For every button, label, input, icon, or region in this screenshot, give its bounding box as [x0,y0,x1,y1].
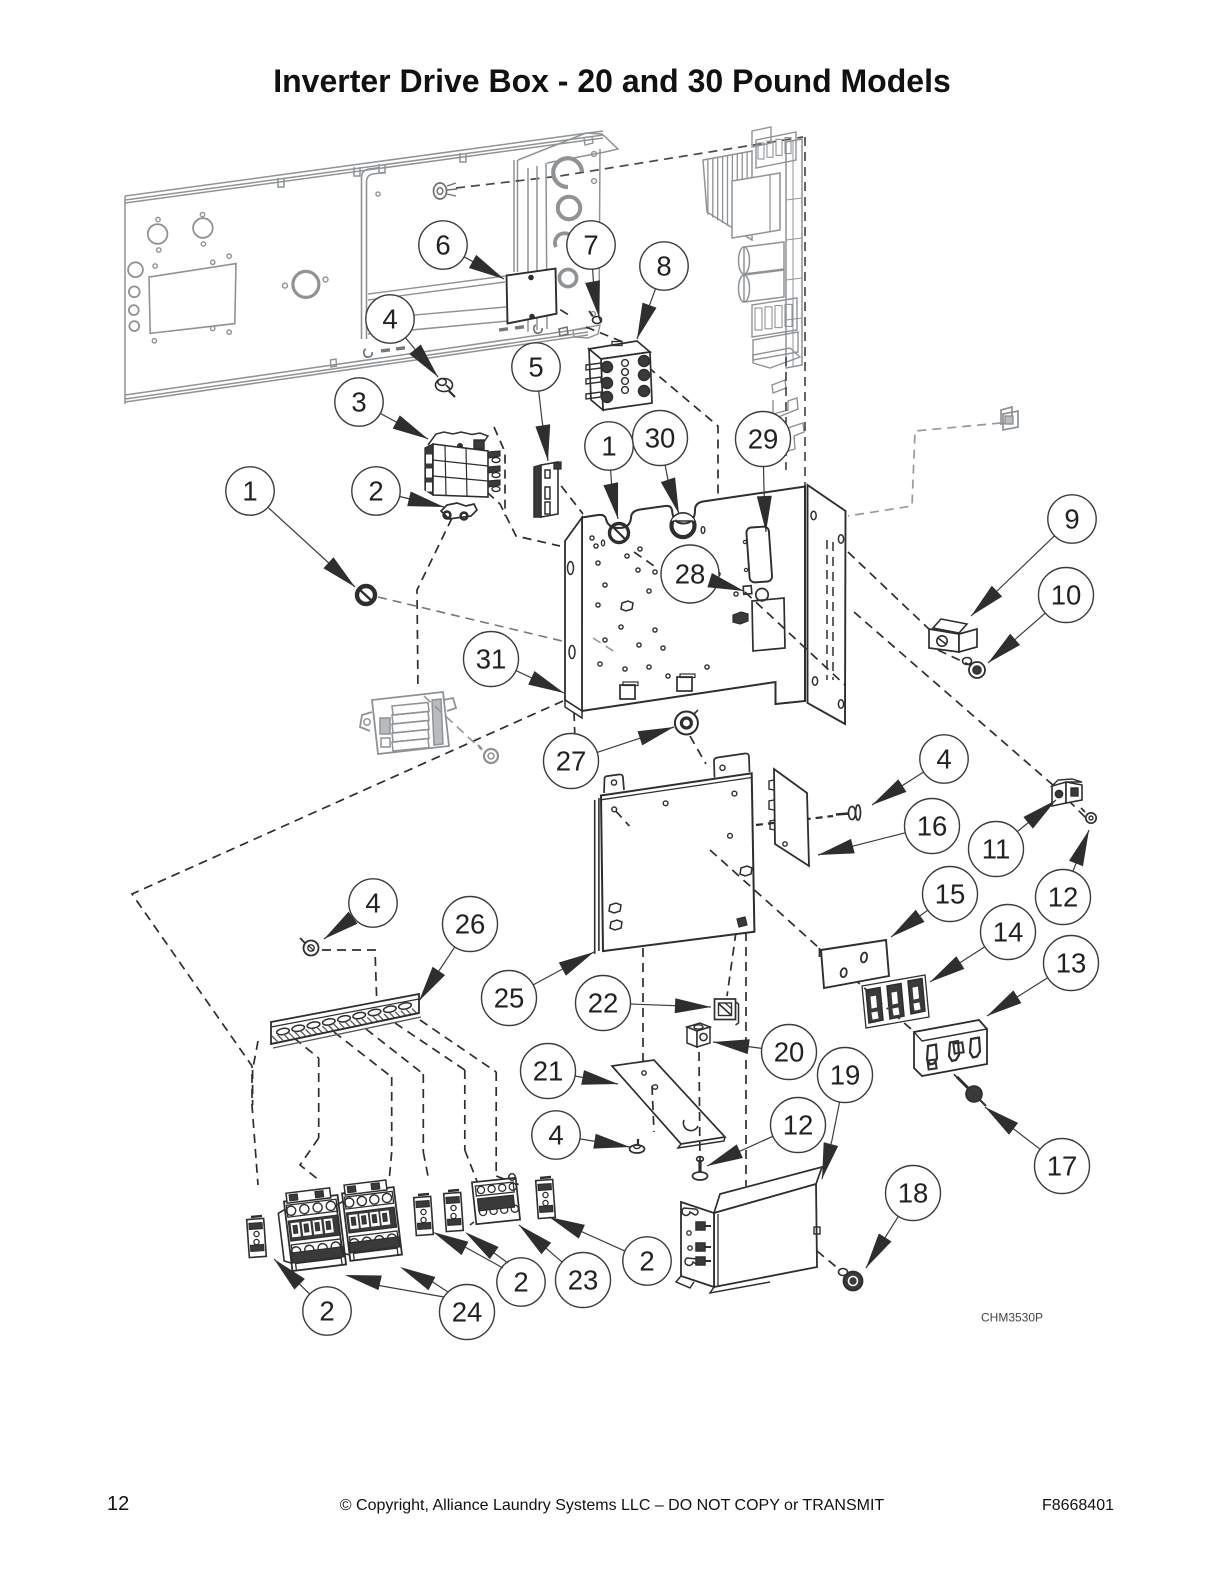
svg-text:4: 4 [936,744,951,775]
svg-text:12: 12 [107,1493,129,1515]
svg-text:12: 12 [783,1110,814,1141]
svg-text:17: 17 [1047,1151,1078,1182]
svg-text:23: 23 [568,1265,599,1296]
svg-text:4: 4 [548,1120,563,1151]
svg-text:15: 15 [935,879,966,910]
svg-text:12: 12 [1048,882,1079,913]
svg-text:26: 26 [455,909,486,940]
svg-text:13: 13 [1056,948,1087,979]
svg-text:11: 11 [982,834,1011,865]
svg-text:8: 8 [656,251,671,282]
svg-text:18: 18 [898,1178,929,1209]
svg-text:31: 31 [476,644,507,675]
svg-text:21: 21 [533,1056,564,1087]
svg-text:1: 1 [601,431,616,462]
svg-text:30: 30 [645,423,676,454]
svg-text:1: 1 [242,476,257,507]
svg-text:16: 16 [917,811,948,842]
svg-text:5: 5 [528,352,543,383]
svg-text:Inverter Drive Box - 20 and 30: Inverter Drive Box - 20 and 30 Pound Mod… [273,63,951,99]
svg-text:CHM3530P: CHM3530P [981,1311,1043,1325]
svg-text:3: 3 [351,387,366,418]
svg-text:20: 20 [774,1037,805,1068]
svg-text:9: 9 [1064,504,1079,535]
svg-text:7: 7 [583,230,598,261]
svg-text:10: 10 [1051,580,1082,611]
svg-text:29: 29 [748,424,779,455]
svg-text:4: 4 [382,304,397,335]
svg-text:6: 6 [435,230,450,261]
svg-text:28: 28 [675,559,706,590]
svg-text:2: 2 [639,1246,654,1277]
svg-text:14: 14 [993,917,1024,948]
svg-text:2: 2 [368,476,383,507]
svg-text:F8668401: F8668401 [1042,1497,1114,1514]
svg-text:19: 19 [830,1060,861,1091]
svg-text:2: 2 [319,1296,334,1327]
svg-text:2: 2 [513,1267,528,1298]
svg-text:4: 4 [365,888,380,919]
svg-text:22: 22 [588,988,619,1019]
svg-text:24: 24 [452,1297,483,1328]
svg-text:25: 25 [494,983,525,1014]
svg-text:27: 27 [556,746,587,777]
svg-text:© Copyright, Alliance Laundry: © Copyright, Alliance Laundry Systems LL… [340,1497,885,1514]
